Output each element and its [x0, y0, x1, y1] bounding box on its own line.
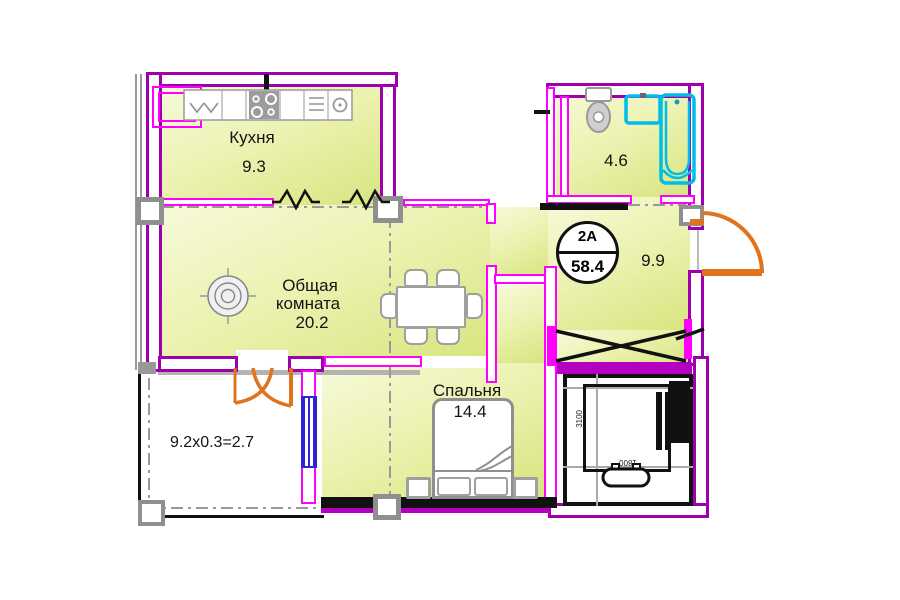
unit-total-area: 58.4	[559, 254, 616, 281]
break-zigzag	[342, 191, 390, 208]
hallway-area-label: 9.9	[641, 251, 665, 271]
balcony-area-label: 9.2x0.3=2.7	[170, 434, 254, 452]
living-label-line1: Общая	[282, 276, 338, 296]
bathroom-area-label: 4.6	[604, 151, 628, 171]
toilet-icon	[586, 88, 611, 132]
living-label-line2: комната	[276, 294, 340, 314]
break-zigzag	[272, 191, 320, 208]
floor-plan: 3100 1800	[0, 0, 900, 600]
balcony-door-arc	[235, 368, 291, 406]
closet-cross	[556, 331, 686, 361]
plan-symbols-layer	[0, 0, 900, 600]
column-axis-marker	[200, 268, 256, 324]
bed-fold	[476, 446, 512, 471]
washbasin-icon	[626, 93, 660, 123]
kitchen-label: Кухня	[229, 128, 275, 148]
bedroom-area-label: 14.4	[453, 402, 486, 422]
bedroom-label: Спальня	[433, 381, 501, 401]
elevator-buffer	[603, 464, 649, 486]
unit-badge: 2А 58.4	[556, 221, 619, 284]
living-area-label: 20.2	[295, 313, 328, 333]
kitchen-area-label: 9.3	[242, 157, 266, 177]
kitchen-counter	[184, 90, 352, 120]
entry-door-arc	[690, 213, 762, 276]
unit-type-label: 2А	[559, 224, 616, 254]
bathtub-icon	[661, 95, 694, 183]
